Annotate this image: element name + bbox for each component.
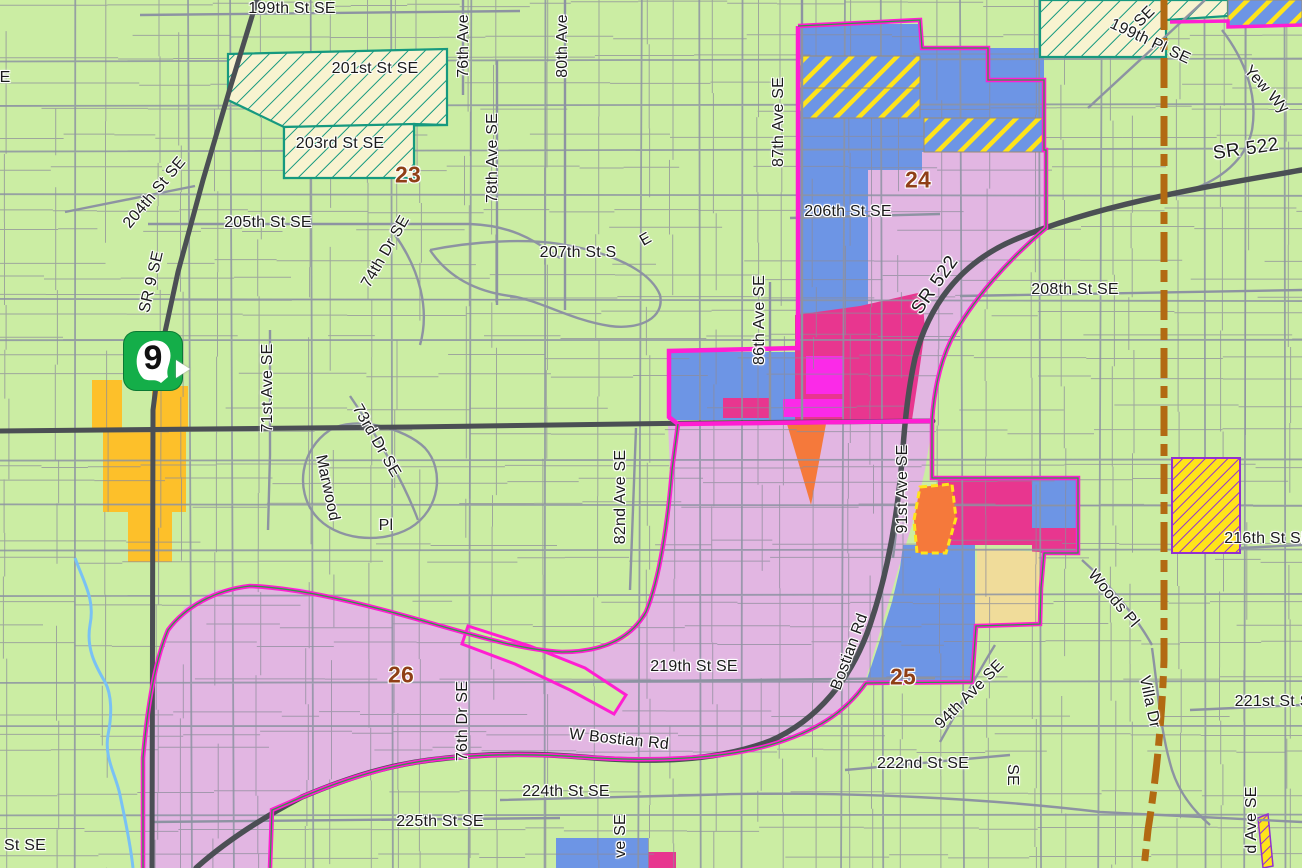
orange-yellow-dash-parcel	[914, 484, 956, 553]
street-label: 87th Ave SE	[771, 77, 787, 167]
sr9-route-shield: 9	[124, 332, 182, 390]
yellow-hatch-row-2	[800, 88, 920, 118]
zone-blue-bottom	[556, 838, 648, 868]
route-arrow-icon	[176, 360, 190, 378]
street-label: 221st St SE	[1235, 694, 1302, 710]
street-label: 78th Ave SE	[485, 113, 501, 203]
yellow-hatch-row-1	[800, 56, 920, 88]
street-label: E	[0, 70, 10, 86]
yellow-hatch-corner	[1228, 0, 1302, 26]
street-label: 82nd Ave SE	[613, 450, 629, 544]
street-label: ve SE	[613, 814, 629, 858]
street-label: 76th Ave	[456, 14, 472, 78]
street-label: 71st Ave SE	[260, 343, 276, 432]
street-label: 199th St SE	[248, 1, 336, 17]
street-label: d Ave SE	[1244, 786, 1260, 853]
district-number-label: 26	[388, 664, 414, 687]
street-label: Pl	[379, 518, 394, 534]
street-label: 222nd St SE	[877, 756, 969, 772]
street-label: 76th Dr SE	[455, 681, 471, 761]
street-label: 208th St SE	[1031, 282, 1119, 298]
sr9-route-number: 9	[124, 339, 182, 378]
street-label: 91st Ave SE	[895, 444, 911, 533]
street-label: 224th St SE	[522, 784, 610, 800]
street-label: 205th St SE	[224, 215, 312, 231]
street-label: 203rd St SE	[296, 136, 384, 152]
yellow-hatch-row-3	[924, 118, 1044, 152]
district-number-label: 23	[395, 164, 421, 187]
street-label: 80th Ave	[555, 14, 571, 78]
district-number-label: 24	[905, 169, 931, 192]
street-label: 207th St S	[540, 245, 617, 261]
street-label: 206th St SE	[804, 204, 892, 220]
district-number-label: 25	[890, 666, 916, 689]
street-label: 219th St SE	[650, 659, 738, 675]
zone-tan	[975, 548, 1040, 625]
street-label: 201st St SE	[332, 61, 419, 77]
zone-blue-east-small	[1032, 478, 1078, 528]
street-label: SE	[1004, 764, 1020, 786]
street-label: 86th Ave SE	[752, 275, 768, 365]
street-label: 216th St SE	[1224, 531, 1302, 547]
street-label: 225th St SE	[396, 814, 484, 830]
zone-magenta-square	[806, 356, 844, 394]
street-label: St SE	[4, 838, 46, 854]
map-canvas[interactable]: 199th St SE201st St SE203rd St SE204th S…	[0, 0, 1302, 868]
